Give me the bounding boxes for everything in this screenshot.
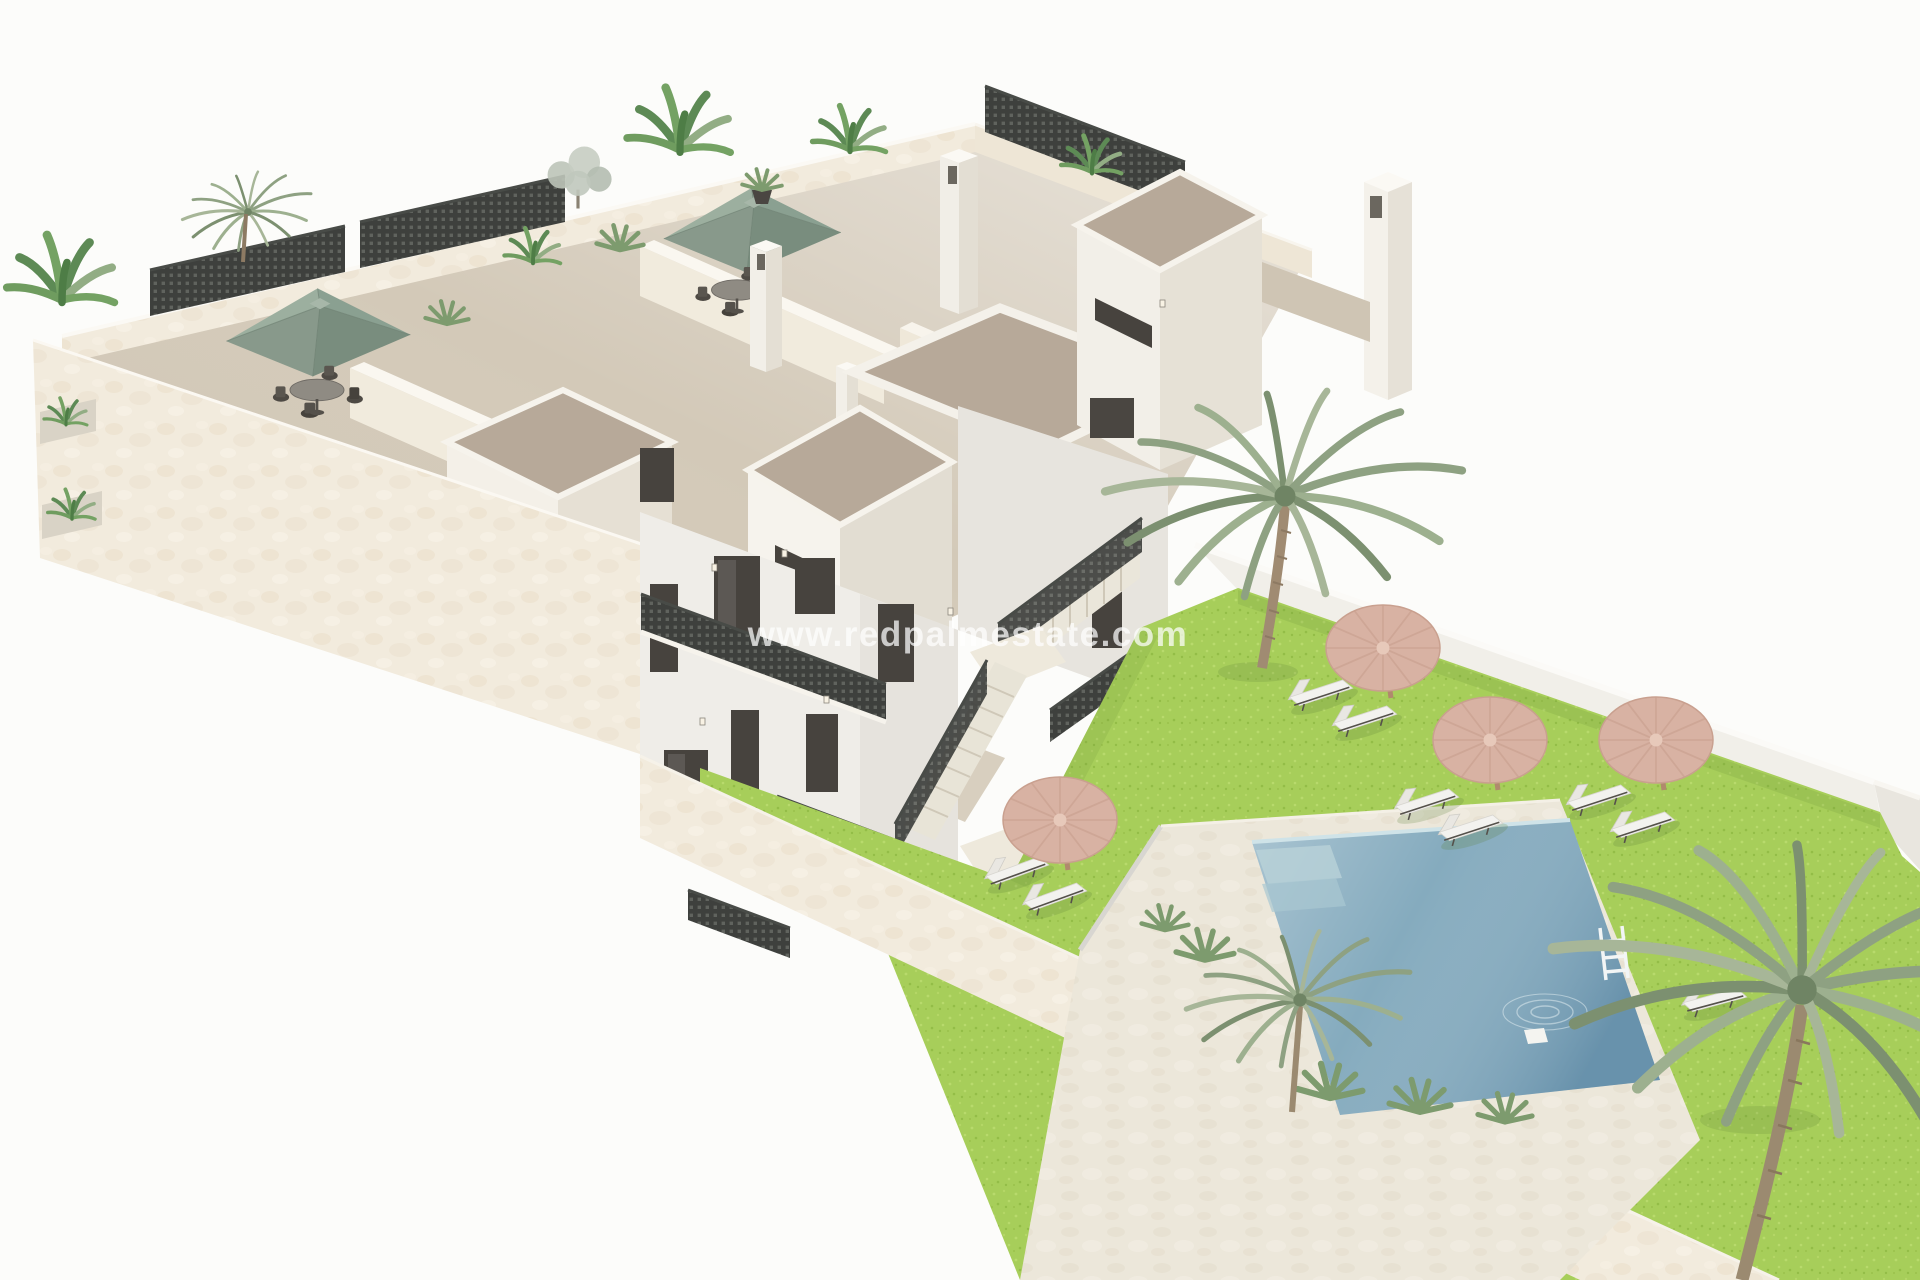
render-image: www.redpalmestate.com: [0, 0, 1920, 1280]
render-canvas: www.redpalmestate.com: [0, 0, 1920, 1280]
window: [795, 558, 835, 614]
watermark-text: www.redpalmestate.com: [747, 615, 1189, 654]
chimney-1: [750, 240, 782, 372]
door: [806, 714, 838, 792]
pool-float: [1524, 1028, 1548, 1044]
chimney-3: [940, 149, 978, 314]
pillar-tower: [1364, 172, 1412, 400]
pool-steps: [1256, 845, 1342, 884]
door: [731, 710, 759, 792]
tower-right: [1077, 172, 1262, 470]
tower-window: [1090, 398, 1134, 438]
tower-window: [640, 448, 674, 502]
